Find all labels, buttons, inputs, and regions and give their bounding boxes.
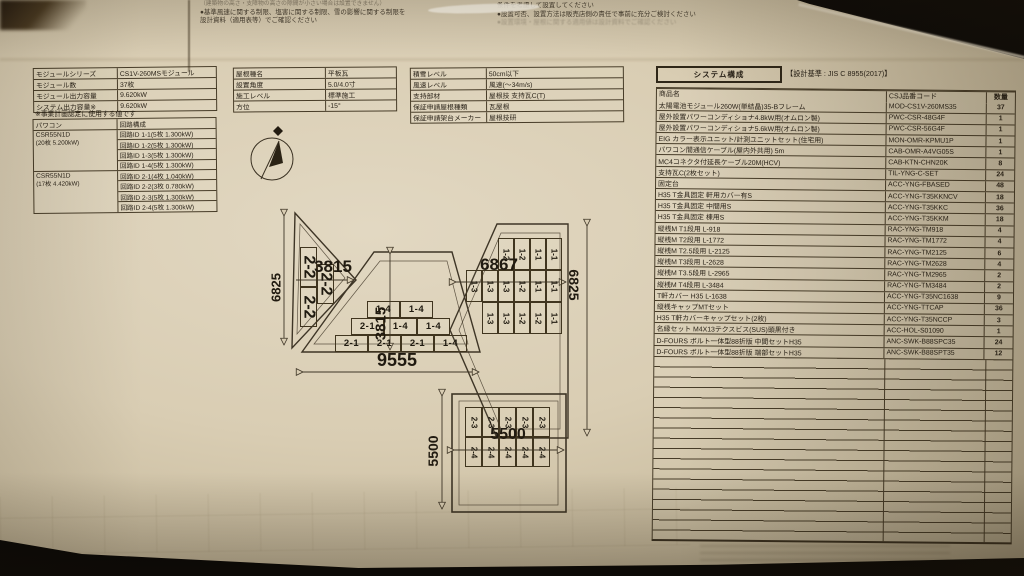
row-value: 5.0/4.0寸 xyxy=(326,78,396,88)
quantity-cell: 36 xyxy=(986,203,1014,213)
top-note-right-line3: ●設置環境・屋根に関する適用値は設計資料でご確認ください xyxy=(497,19,707,28)
compass-icon xyxy=(251,126,293,180)
row-value: -15° xyxy=(326,102,396,109)
row-value: 瓦屋根 xyxy=(487,100,623,111)
roof-cell: 2-4 xyxy=(533,437,550,467)
dim-right-width: 6867 xyxy=(470,255,528,275)
inverter-groups: CSR55N1D (20枚 5.200kW) 回路ID 1-1(5枚 1.300… xyxy=(34,128,217,213)
roof-cell: 1-2 xyxy=(514,302,530,334)
roof-cell: 1-3 xyxy=(498,302,514,334)
part-code-cell: ACC-YNG-T35KKNCV xyxy=(886,191,986,202)
circuit-col-header: 回路構成 xyxy=(118,118,216,129)
quantity-cell: 9 xyxy=(985,293,1013,303)
top-note-right-line2: ●設置可否、設置方法は販売店側の責任で事前に充分ご検討ください xyxy=(497,11,707,20)
inverter-name-cell: CSR55N1D (20枚 5.200kW) xyxy=(34,130,118,171)
top-note-left-line2: ●基準風速に関する制限、塩害に関する制限、雪の影響に関する制限を xyxy=(200,9,435,18)
top-note-left: （建築物の高さ・支障物の高さの隙間が小さい場合は設置できません） ●基準風速に関… xyxy=(200,0,435,26)
part-code-cell: ANC-SWK-B88SPC35 xyxy=(885,337,985,348)
quantity-cell: 37 xyxy=(987,103,1015,113)
part-code-cell: ACC-YNG-T35NCCP xyxy=(885,314,985,325)
table-row: 方位 -15° xyxy=(234,99,396,111)
part-code-cell: RAC-YNG-TM2125 xyxy=(885,247,985,258)
table-row: モジュール数 37枚 xyxy=(34,77,216,90)
row-value: CS1V-260MSモジュール xyxy=(118,67,216,78)
system-config-title: システム構成 xyxy=(656,66,782,83)
row-label: 風速レベル xyxy=(411,79,487,90)
quantity-cell: 4 xyxy=(985,259,1013,269)
dim-center-width: 9555 xyxy=(366,350,428,371)
right-roof-cells: 1-2 1-2 1-1 1-1 1-3 1-3 1-3 1-2 xyxy=(466,238,562,334)
row-value: 屋根技 支持瓦C(T) xyxy=(487,89,623,100)
quantity-cell: 6 xyxy=(985,248,1013,258)
quantity-cell: 1 xyxy=(985,326,1013,336)
photo-corner-shadow-tl xyxy=(0,0,86,30)
inverter-group-row: CSR55N1D (17枚 4.420kW) 回路ID 2-1(4枚 1.040… xyxy=(34,169,216,212)
inverter-table-header: パワコン 回路構成 xyxy=(34,118,216,129)
row-label: 方位 xyxy=(234,101,326,112)
dim-center-slope: 3815 xyxy=(373,302,390,346)
row-label: 設置角度 xyxy=(234,79,326,90)
quantity-cell: 12 xyxy=(984,349,1012,359)
quantity-cell: 4 xyxy=(986,226,1014,236)
quantity-cell: 2 xyxy=(985,282,1013,292)
table-row: 積雪レベル 50cm以下 xyxy=(411,67,623,78)
dim-left-width: 3815 xyxy=(306,257,360,277)
showthrough-smudge xyxy=(700,545,950,561)
row-label: モジュール出力容量 xyxy=(34,90,118,101)
roof-cell: 2-3 xyxy=(465,407,482,437)
column-divider xyxy=(883,359,886,541)
roof-cell: 1-4 xyxy=(434,335,467,352)
roof-cell: 1-4 xyxy=(400,301,433,318)
roof-cell: 1-1 xyxy=(530,238,546,270)
inverter-col-header: パワコン xyxy=(34,119,118,129)
roof-cell: 1-3 xyxy=(482,302,498,334)
row-label: モジュールシリーズ xyxy=(34,68,118,79)
cell-row: 2-1 1-4 1-4 xyxy=(351,318,467,335)
row-value: 風速(～34m/s) xyxy=(487,78,623,89)
part-code-cell: CAB-OMR-A4VG05S xyxy=(886,146,986,157)
roof-cell: 1-2 xyxy=(530,302,546,334)
part-code-cell: PWC-CSR-56G4F xyxy=(887,124,987,135)
part-code-cell: ACC-YNG-FBASED xyxy=(886,180,986,191)
part-code-cell: TIL-YNG-C-SET xyxy=(886,169,986,180)
module-info-table: モジュールシリーズ CS1V-260MSモジュール モジュール数 37枚 モジュ… xyxy=(33,66,217,113)
cell-row: 1-3 1-3 1-2 1-2 1-1 xyxy=(482,302,562,334)
dim-left-height: 6825 xyxy=(269,266,284,310)
document-photo: （建築物の高さ・支障物の高さの隙間が小さい場合は設置できません） ●基準風速に関… xyxy=(0,0,1024,576)
roof-cell: 1-1 xyxy=(546,302,562,334)
part-code-cell: ACC-HOL-S01090 xyxy=(885,325,985,336)
part-code-cell: CAB-KTN-CHN20K xyxy=(886,158,986,169)
inverter-capacity: (17枚 4.420kW) xyxy=(36,180,115,189)
column-divider xyxy=(984,360,987,542)
quantity-cell: 8 xyxy=(986,159,1014,169)
paper-crease xyxy=(0,58,1024,61)
row-label: 支持部材 xyxy=(411,90,487,101)
dim-right-height: 6825 xyxy=(566,263,582,307)
dim-south-height: 5500 xyxy=(425,429,441,473)
roof-spec-table: 屋根種名 平板瓦 設置角度 5.0/4.0寸 施工レベル 標準施工 方位 -15… xyxy=(233,66,397,112)
part-code-cell: PWC-CSR-48G4F xyxy=(887,113,987,124)
row-value: 標準施工 xyxy=(326,89,396,99)
quantity-cell: 1 xyxy=(986,136,1014,146)
row-value: 9.620kW xyxy=(118,91,216,99)
circuit-row: 回路ID 1-4(5枚 1.300kW) xyxy=(118,159,216,170)
center-roof-cells: 1-4 1-4 2-1 1-4 1-4 2-1 2-1 xyxy=(335,301,467,352)
row-label: 屋根種名 xyxy=(234,68,326,79)
row-label: 積雪レベル xyxy=(411,68,487,79)
top-note-left-line1: （建築物の高さ・支障物の高さの隙間が小さい場合は設置できません） xyxy=(200,0,435,9)
quantity-cell: 18 xyxy=(986,215,1014,225)
design-standard: 【設計基準 : JIS C 8955(2017)】 xyxy=(786,69,891,79)
quantity-cell: 24 xyxy=(986,170,1014,180)
roof-cell: 1-1 xyxy=(546,238,562,270)
quantity-cell: 3 xyxy=(985,315,1013,325)
inverter-circuits-table: パワコン 回路構成 CSR55N1D (20枚 5.200kW) 回路ID 1-… xyxy=(33,117,218,214)
empty-rows-area xyxy=(653,356,1013,542)
part-code-cell: ACC-YNG-TTCAP xyxy=(885,303,985,314)
quantity-cell: 1 xyxy=(987,114,1015,124)
roof-cell: 1-4 xyxy=(417,318,450,335)
row-label: モジュール数 xyxy=(34,79,118,90)
part-code-cell: RAC-YNG-TM3484 xyxy=(885,281,985,292)
system-table-rows: 太陽電池モジュール260W(単結晶)35-Bフレーム MOD-CS1V-260M… xyxy=(654,100,1014,360)
table-row: 屋根種名 平板瓦 xyxy=(234,67,396,78)
quantity-cell: 4 xyxy=(985,237,1013,247)
part-code-cell: MOD-CS1V-260MS35 xyxy=(887,102,987,113)
table-row: 設置角度 5.0/4.0寸 xyxy=(234,77,396,89)
roof-cell: 1-1 xyxy=(530,270,546,302)
top-note-left-line3: 設計資料（適用表等）でご確認ください xyxy=(200,17,435,26)
table-row: 支持部材 屋根技 支持瓦C(T) xyxy=(411,88,623,100)
quantity-cell: 36 xyxy=(985,304,1013,314)
part-code-cell: RAC-YNG-TM1772 xyxy=(885,236,985,247)
column-header-qty: 数量 xyxy=(987,92,1015,103)
part-code-cell: MON-OMR-KPMU1P xyxy=(886,135,986,146)
table-row: 施工レベル 標準施工 xyxy=(234,88,396,100)
row-label: 施工レベル xyxy=(234,90,326,101)
part-code-cell: RAC-YNG-TM918 xyxy=(886,225,986,236)
part-code-cell: RAC-YNG-TM2628 xyxy=(885,258,985,269)
inverter-group-row: CSR55N1D (20枚 5.200kW) 回路ID 1-1(5枚 1.300… xyxy=(34,128,216,171)
row-value: 平板瓦 xyxy=(326,67,396,77)
table-row: 風速レベル 風速(～34m/s) xyxy=(411,77,623,89)
quantity-cell: 18 xyxy=(986,192,1014,202)
circuit-row: 回路ID 2-4(5枚 1.300kW) xyxy=(118,200,216,211)
roof-cell: 2-1 xyxy=(335,335,368,352)
dim-south-width: 5500 xyxy=(483,426,533,444)
table-row: 保証申請屋根種類 瓦屋根 xyxy=(411,99,623,111)
row-value: 50cm以下 xyxy=(487,67,623,78)
roof-cell: 2-2 xyxy=(300,287,317,327)
circuit-list: 回路ID 2-1(4枚 1.040kW) 回路ID 2-2(3枚 0.780kW… xyxy=(118,170,216,212)
circuit-list: 回路ID 1-1(5枚 1.300kW) 回路ID 1-2(5枚 1.300kW… xyxy=(118,129,216,171)
inverter-capacity: (20枚 5.200kW) xyxy=(36,139,115,148)
inverter-name-cell: CSR55N1D (17枚 4.420kW) xyxy=(34,171,118,212)
part-code-cell: ACC-YNG-T35KKM xyxy=(886,214,986,225)
quantity-cell: 24 xyxy=(985,338,1013,348)
system-configuration-table: 商品名 CSJ品番コード 数量 太陽電池モジュール260W(単結晶)35-Bフレ… xyxy=(652,87,1016,544)
quantity-cell: 1 xyxy=(986,147,1014,157)
paper-fold-line xyxy=(188,0,190,72)
quantity-cell: 48 xyxy=(986,181,1014,191)
part-code-cell: ACC-YNG-T35KKC xyxy=(886,202,986,213)
row-label: 保証申請屋根種類 xyxy=(411,101,487,112)
part-code-cell: ACC-YNG-T35NC1638 xyxy=(885,292,985,303)
quantity-cell: 2 xyxy=(985,270,1013,280)
module-note: ※事業計画認定に使用する値です xyxy=(35,108,136,118)
environment-spec-table: 積雪レベル 50cm以下 風速レベル 風速(～34m/s) 支持部材 屋根技 支… xyxy=(410,66,624,123)
roof-cell: 2-4 xyxy=(465,437,482,467)
roof-cell: 1-1 xyxy=(546,270,562,302)
row-value: 37枚 xyxy=(118,78,216,89)
roof-cell: 2-3 xyxy=(533,407,550,437)
quantity-cell: 1 xyxy=(987,125,1015,135)
part-code-cell: RAC-YNG-TM2965 xyxy=(885,270,985,281)
